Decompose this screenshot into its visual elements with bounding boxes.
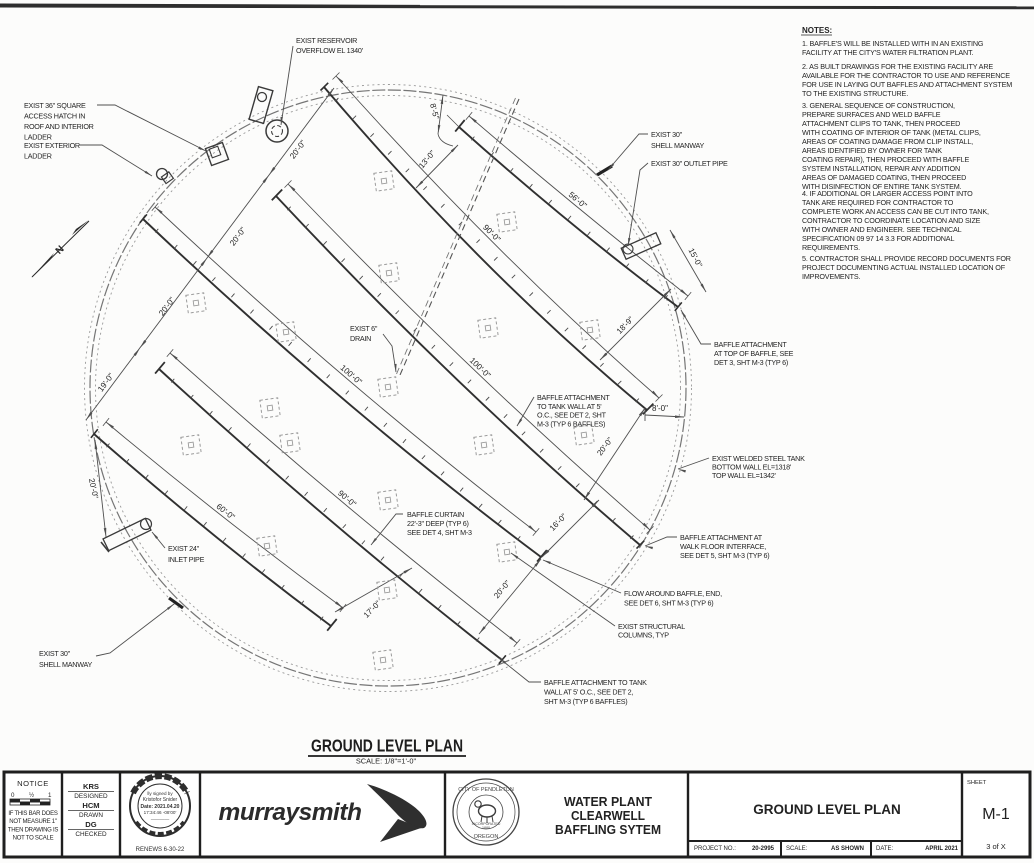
- svg-text:1: 1: [48, 792, 52, 799]
- svg-text:WITH COATING OF INTERIOR OF TA: WITH COATING OF INTERIOR OF TANK (METAL …: [802, 128, 981, 137]
- svg-text:ATTACHMENT CLIPS TO TANK, THEN: ATTACHMENT CLIPS TO TANK, THEN PROCEED: [802, 119, 960, 128]
- svg-text:8'-0": 8'-0": [652, 404, 668, 413]
- svg-text:DRAWN: DRAWN: [79, 812, 103, 819]
- svg-text:EXIST 24": EXIST 24": [168, 544, 200, 553]
- svg-text:Kristofor Snider: Kristofor Snider: [143, 797, 178, 803]
- svg-text:3. GENERAL SEQUENCE OF CONSTRU: 3. GENERAL SEQUENCE OF CONSTRUCTION,: [802, 101, 955, 110]
- svg-text:EXIST 30" OUTLET PIPE: EXIST 30" OUTLET PIPE: [651, 159, 728, 168]
- svg-text:BAFFLING SYTEM: BAFFLING SYTEM: [555, 823, 661, 837]
- svg-text:RENEWS 6-30-22: RENEWS 6-30-22: [136, 847, 185, 853]
- svg-text:22'-3" DEEP (TYP 6): 22'-3" DEEP (TYP 6): [407, 519, 469, 528]
- svg-text:OREGON: OREGON: [474, 834, 499, 840]
- svg-text:DRAIN: DRAIN: [350, 334, 371, 343]
- svg-text:EXIST 36" SQUARE: EXIST 36" SQUARE: [24, 101, 86, 110]
- svg-text:BAFFLE ATTACHMENT: BAFFLE ATTACHMENT: [537, 393, 610, 402]
- svg-text:M-3 (TYP 6 BAFFLES): M-3 (TYP 6 BAFFLES): [537, 419, 605, 428]
- svg-text:20-2995: 20-2995: [752, 846, 775, 852]
- svg-text:COLUMNS, TYP: COLUMNS, TYP: [618, 631, 669, 640]
- svg-text:1. BAFFLE'S WILL BE INSTALLED: 1. BAFFLE'S WILL BE INSTALLED WITH IN AN…: [802, 39, 984, 48]
- svg-text:O.C., SEE DET 2, SHT: O.C., SEE DET 2, SHT: [537, 411, 607, 420]
- svg-text:HCM: HCM: [82, 801, 99, 810]
- svg-text:2. AS BUILT DRAWINGS FOR THE E: 2. AS BUILT DRAWINGS FOR THE EXISTING FA…: [802, 62, 993, 71]
- svg-text:murraysmith: murraysmith: [219, 799, 362, 826]
- svg-text:GROUND LEVEL PLAN: GROUND LEVEL PLAN: [753, 802, 901, 817]
- svg-text:DATE:: DATE:: [876, 846, 894, 852]
- svg-text:M-1: M-1: [982, 806, 1010, 823]
- svg-text:TOP WALL EL=1342': TOP WALL EL=1342': [712, 471, 777, 480]
- svg-text:PROJECT DOCUMENTING ACTUAL INS: PROJECT DOCUMENTING ACTUAL INSTALLED LOC…: [802, 263, 1006, 272]
- svg-text:IF THIS BAR DOES: IF THIS BAR DOES: [8, 811, 57, 817]
- svg-text:AREAS IDENTIFIED BY OWNER FOR: AREAS IDENTIFIED BY OWNER FOR TANK: [802, 146, 942, 155]
- svg-text:WALK FLOOR INTERFACE,: WALK FLOOR INTERFACE,: [680, 542, 766, 551]
- svg-text:KRS: KRS: [83, 782, 99, 791]
- svg-text:½: ½: [29, 792, 34, 799]
- svg-text:DESIGNED: DESIGNED: [74, 793, 108, 800]
- svg-text:EXIST RESERVOIR: EXIST RESERVOIR: [296, 36, 357, 45]
- svg-text:1880: 1880: [482, 826, 490, 830]
- svg-text:DG: DG: [85, 820, 96, 829]
- svg-text:ACCESS HATCH IN: ACCESS HATCH IN: [24, 112, 85, 121]
- svg-text:SEE DET 6, SHT M-3 (TYP 6): SEE DET 6, SHT M-3 (TYP 6): [624, 599, 713, 608]
- svg-text:AREAS OF COATING DAMAGE FROM C: AREAS OF COATING DAMAGE FROM CLIP INSTAL…: [802, 137, 973, 146]
- svg-text:lly signed by: lly signed by: [147, 791, 173, 796]
- svg-text:————: ————: [151, 817, 170, 822]
- svg-text:COMPLETE WORK AN ACCESS CAN BE: COMPLETE WORK AN ACCESS CAN BE CUT INTO …: [802, 207, 989, 216]
- svg-text:IMPROVEMENTS.: IMPROVEMENTS.: [802, 272, 861, 281]
- svg-text:17:34:46 -08'00': 17:34:46 -08'00': [144, 810, 177, 815]
- svg-text:SEE DET 4, SHT M-3: SEE DET 4, SHT M-3: [407, 528, 472, 537]
- svg-text:COATING REPAIR), THEN PROCEED: COATING REPAIR), THEN PROCEED WITH BAFFL…: [802, 155, 970, 164]
- svg-text:SCALE:: SCALE:: [786, 846, 808, 852]
- svg-text:AT TOP OF BAFFLE, SEE: AT TOP OF BAFFLE, SEE: [714, 349, 794, 358]
- svg-text:SCALE: 1/8"=1'-0": SCALE: 1/8"=1'-0": [356, 757, 417, 766]
- svg-text:DET 3, SHT M-3 (TYP 6): DET 3, SHT M-3 (TYP 6): [714, 358, 788, 367]
- svg-text:NOTES:: NOTES:: [802, 26, 832, 35]
- svg-text:CHECKED: CHECKED: [75, 831, 107, 838]
- svg-text:EXIST 30": EXIST 30": [651, 130, 683, 139]
- svg-text:NOTICE: NOTICE: [17, 779, 49, 788]
- svg-text:CLEARWELL: CLEARWELL: [571, 809, 645, 823]
- svg-text:EXIST 30": EXIST 30": [39, 649, 71, 658]
- svg-text:ROOF AND INTERIOR: ROOF AND INTERIOR: [24, 122, 94, 131]
- svg-text:TO THE EXISTING STRUCTURE.: TO THE EXISTING STRUCTURE.: [802, 89, 908, 98]
- svg-text:PROJECT NO.:: PROJECT NO.:: [694, 846, 736, 852]
- svg-text:SHT M-3 (TYP 6 BAFFLES): SHT M-3 (TYP 6 BAFFLES): [544, 697, 627, 706]
- svg-text:INLET PIPE: INLET PIPE: [168, 555, 205, 564]
- svg-text:TO TANK WALL AT 5': TO TANK WALL AT 5': [537, 402, 602, 411]
- svg-text:SPECIFICATION 09 97 14 3.3 FOR: SPECIFICATION 09 97 14 3.3 FOR ADDITIONA…: [802, 234, 954, 243]
- svg-text:OVERFLOW EL 1340': OVERFLOW EL 1340': [296, 46, 364, 55]
- svg-text:BAFFLE ATTACHMENT TO TANK: BAFFLE ATTACHMENT TO TANK: [544, 678, 647, 687]
- svg-text:WALL AT 5' O.C., SEE DET 2,: WALL AT 5' O.C., SEE DET 2,: [544, 687, 633, 696]
- svg-text:SHEET: SHEET: [967, 780, 987, 786]
- svg-text:REQUIREMENTS.: REQUIREMENTS.: [802, 243, 860, 252]
- svg-text:THEN DRAWING IS: THEN DRAWING IS: [8, 827, 59, 833]
- svg-text:EXIST 6": EXIST 6": [350, 324, 378, 333]
- svg-text:WITH OWNER AND ENGINEER. SEE: WITH OWNER AND ENGINEER. SEE TECHNICAL: [802, 225, 962, 234]
- svg-text:SEE DET 5, SHT M-3 (TYP 6): SEE DET 5, SHT M-3 (TYP 6): [680, 551, 769, 560]
- svg-text:BAFFLE CURTAIN: BAFFLE CURTAIN: [407, 510, 464, 519]
- svg-text:NOT TO SCALE: NOT TO SCALE: [13, 836, 54, 842]
- svg-text:EXIST EXTERIOR: EXIST EXTERIOR: [24, 141, 80, 150]
- svg-text:BAFFLE ATTACHMENT: BAFFLE ATTACHMENT: [714, 340, 787, 349]
- svg-text:AREAS OF DAMAGED COATING, THEN: AREAS OF DAMAGED COATING, THEN PROCEED: [802, 173, 966, 182]
- svg-text:0: 0: [11, 792, 15, 799]
- svg-text:CONTRACTOR TO COORDINATE LOCAT: CONTRACTOR TO COORDINATE LOCATION AND SI…: [802, 216, 981, 225]
- svg-text:FLOW AROUND BAFFLE, END,: FLOW AROUND BAFFLE, END,: [624, 589, 722, 598]
- svg-text:GROUND LEVEL PLAN: GROUND LEVEL PLAN: [311, 736, 463, 756]
- svg-text:BAFFLE ATTACHMENT AT: BAFFLE ATTACHMENT AT: [680, 533, 763, 542]
- svg-text:SYSTEM INSTALLATION, REPAIR AN: SYSTEM INSTALLATION, REPAIR ANY ADDITION: [802, 164, 960, 173]
- svg-text:NOT MEASURE 1": NOT MEASURE 1": [9, 819, 57, 825]
- svg-text:LADDER: LADDER: [24, 152, 52, 161]
- svg-text:SHELL MANWAY: SHELL MANWAY: [39, 660, 93, 669]
- svg-text:PREPARE SURFACES AND WELD BAFF: PREPARE SURFACES AND WELD BAFFLE: [802, 110, 941, 119]
- svg-text:SHELL MANWAY: SHELL MANWAY: [651, 141, 705, 150]
- svg-text:APRIL 2021: APRIL 2021: [925, 846, 959, 852]
- svg-text:FOR USE IN LAYING OUT BAFFLES: FOR USE IN LAYING OUT BAFFLES AND ATTACH…: [802, 80, 1012, 89]
- svg-text:TANK ARE REQUIRED FOR CONTRACT: TANK ARE REQUIRED FOR CONTRACTOR TO: [802, 198, 954, 207]
- svg-text:AVAILABLE FOR THE CONTRACTOR T: AVAILABLE FOR THE CONTRACTOR TO USE AND …: [802, 71, 1010, 80]
- svg-text:AS SHOWN: AS SHOWN: [831, 846, 864, 852]
- svg-text:WATER PLANT: WATER PLANT: [564, 795, 652, 809]
- svg-text:5. CONTRACTOR SHALL PROVIDE RE: 5. CONTRACTOR SHALL PROVIDE RECORD DOCUM…: [802, 254, 1011, 263]
- svg-text:4. IF ADDITIONAL OR LARGER ACC: 4. IF ADDITIONAL OR LARGER ACCESS POINT …: [802, 189, 973, 198]
- svg-text:3 of X: 3 of X: [986, 842, 1006, 851]
- svg-text:FACILITY AT THE CITY'S WATER F: FACILITY AT THE CITY'S WATER FILTRATION …: [802, 48, 974, 57]
- svg-text:CITY OF PENDLETON: CITY OF PENDLETON: [458, 787, 514, 793]
